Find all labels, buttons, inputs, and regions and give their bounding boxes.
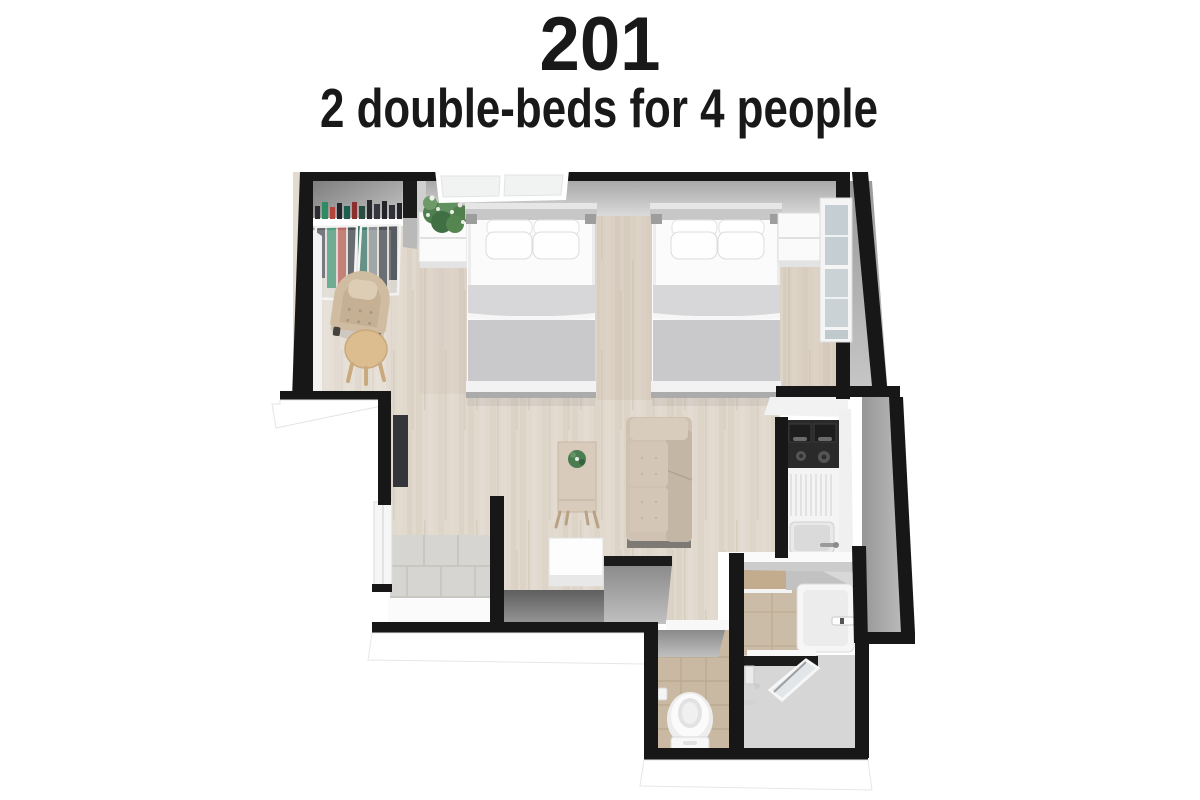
- svg-text:201: 201: [540, 2, 661, 87]
- svg-text:2 double-beds for 4 people: 2 double-beds for 4 people: [320, 77, 878, 139]
